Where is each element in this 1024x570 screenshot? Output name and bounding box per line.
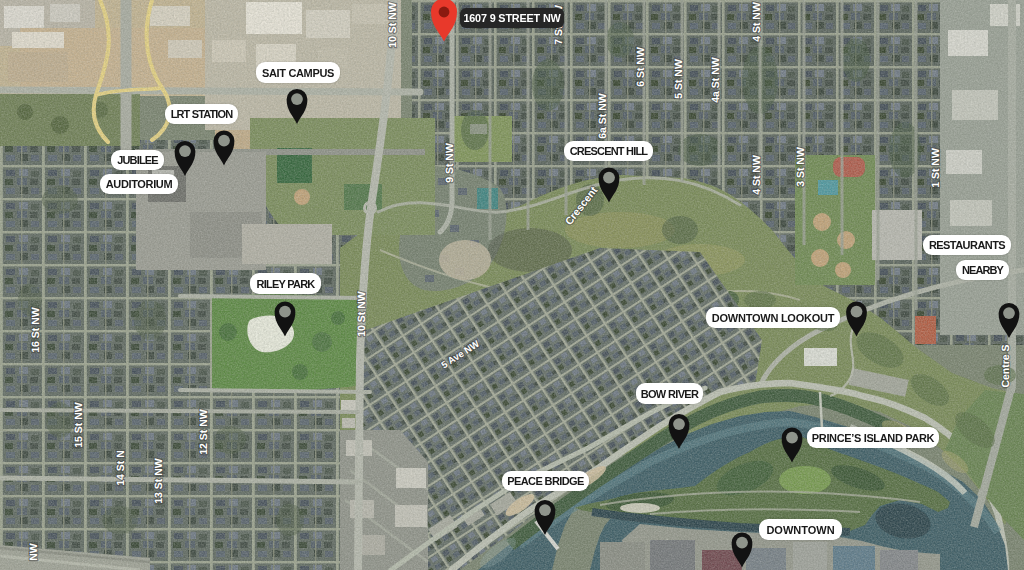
svg-text:4a St NW: 4a St NW — [710, 57, 722, 103]
svg-text:3 St NW: 3 St NW — [795, 147, 807, 187]
svg-text:4 St NW: 4 St NW — [751, 155, 763, 195]
svg-text:5 St NW: 5 St NW — [673, 59, 685, 99]
svg-text:16 St NW: 16 St NW — [30, 307, 42, 353]
svg-text:14 St N: 14 St N — [115, 450, 127, 486]
svg-text:Centre S: Centre S — [1000, 344, 1012, 387]
svg-text:6 St NW: 6 St NW — [635, 47, 647, 87]
svg-text:15 St NW: 15 St NW — [73, 402, 85, 448]
svg-text:6a St NW: 6a St NW — [597, 93, 609, 139]
svg-text:4 St NW: 4 St NW — [751, 2, 763, 42]
svg-text:9 St NW: 9 St NW — [444, 143, 456, 183]
svg-text:1 St NW: 1 St NW — [930, 148, 942, 188]
svg-text:NW: NW — [28, 543, 40, 561]
svg-text:12 St NW: 12 St NW — [198, 409, 210, 455]
svg-text:10 St NW: 10 St NW — [356, 291, 368, 337]
svg-text:10 St NW: 10 St NW — [387, 2, 399, 48]
svg-text:13 St NW: 13 St NW — [153, 458, 165, 504]
